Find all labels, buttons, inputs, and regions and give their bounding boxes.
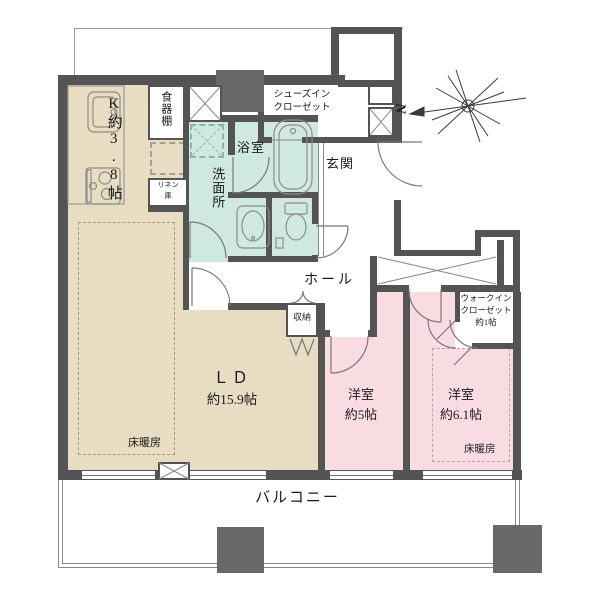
storage-door-arcs [291, 291, 315, 303]
living-label: ＬＤ 約15.9帖 [168, 369, 296, 411]
toilet-tank-icon [285, 203, 307, 214]
entrance-label: 玄関 [326, 156, 354, 172]
living-door-arc [192, 268, 230, 306]
wic-label: ウォークインクローゼット約1帖 [458, 293, 514, 329]
cupboard-label: 食器棚 [158, 91, 172, 137]
compass-north-label: N [390, 103, 409, 114]
west6-label: 洋室約6.1帖 [418, 385, 504, 424]
closet-x [378, 257, 496, 284]
pipe-space-x [190, 87, 220, 120]
toilet-bowl-icon [286, 214, 306, 240]
floor-plan: K約3.8帖 食器棚 リネン庫 シューズインクローゼット 浴室 洗面所 玄関 ホ… [0, 0, 600, 600]
front-door-arc [378, 142, 422, 186]
toilet-door-arc [316, 226, 348, 258]
west6-door-arc [409, 289, 441, 322]
washroom-label: 洗面所 [209, 167, 225, 257]
west5-door-arc [331, 336, 368, 373]
paper-holder-icon [276, 238, 283, 248]
compass-icon [410, 70, 526, 142]
hall-label: ホール [304, 272, 355, 290]
storage-label: 収納 [287, 312, 317, 323]
shoes-closet-label: シューズインクローゼット [254, 89, 350, 115]
balcony-label: バルコニー [225, 489, 370, 508]
kitchen-label: K約3.8帖 [104, 96, 123, 206]
wall-x [159, 463, 189, 479]
linen-label: リネン庫 [149, 180, 187, 201]
pipe-space-x-2 [370, 109, 392, 135]
bath-door-arc [233, 157, 269, 193]
floor-heating-ld-label: 床暖房 [128, 437, 161, 451]
west5-label: 洋室約5帖 [320, 385, 402, 424]
bifold-door-zigzag [290, 339, 314, 355]
floor-heating-west6-label: 床暖房 [464, 443, 496, 456]
washer-x [191, 125, 223, 157]
bath-label: 浴室 [237, 140, 265, 156]
